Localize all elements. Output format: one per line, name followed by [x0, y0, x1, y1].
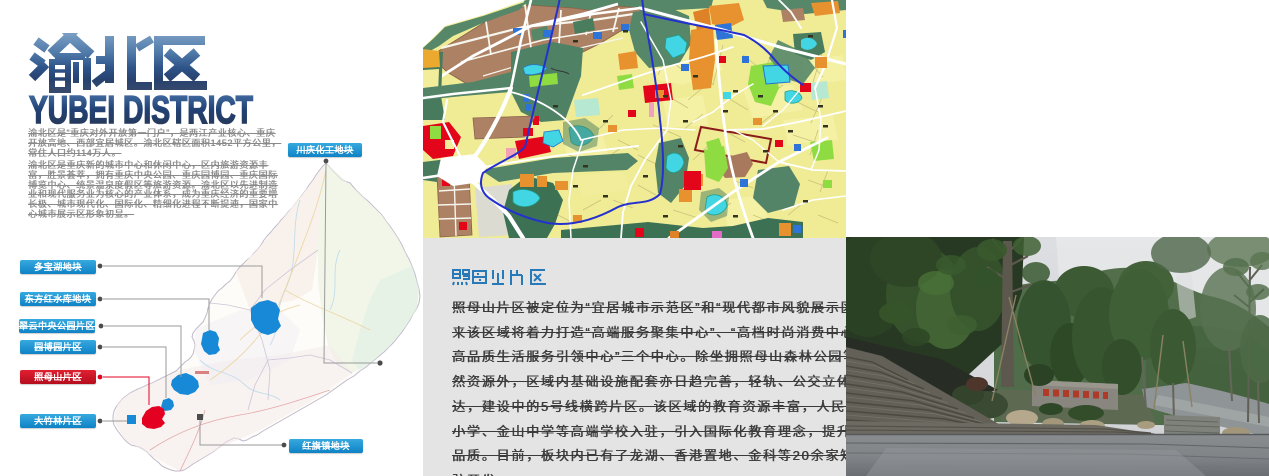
- svg-text:YUBEI DISTRICT: YUBEI DISTRICT: [29, 89, 253, 130]
